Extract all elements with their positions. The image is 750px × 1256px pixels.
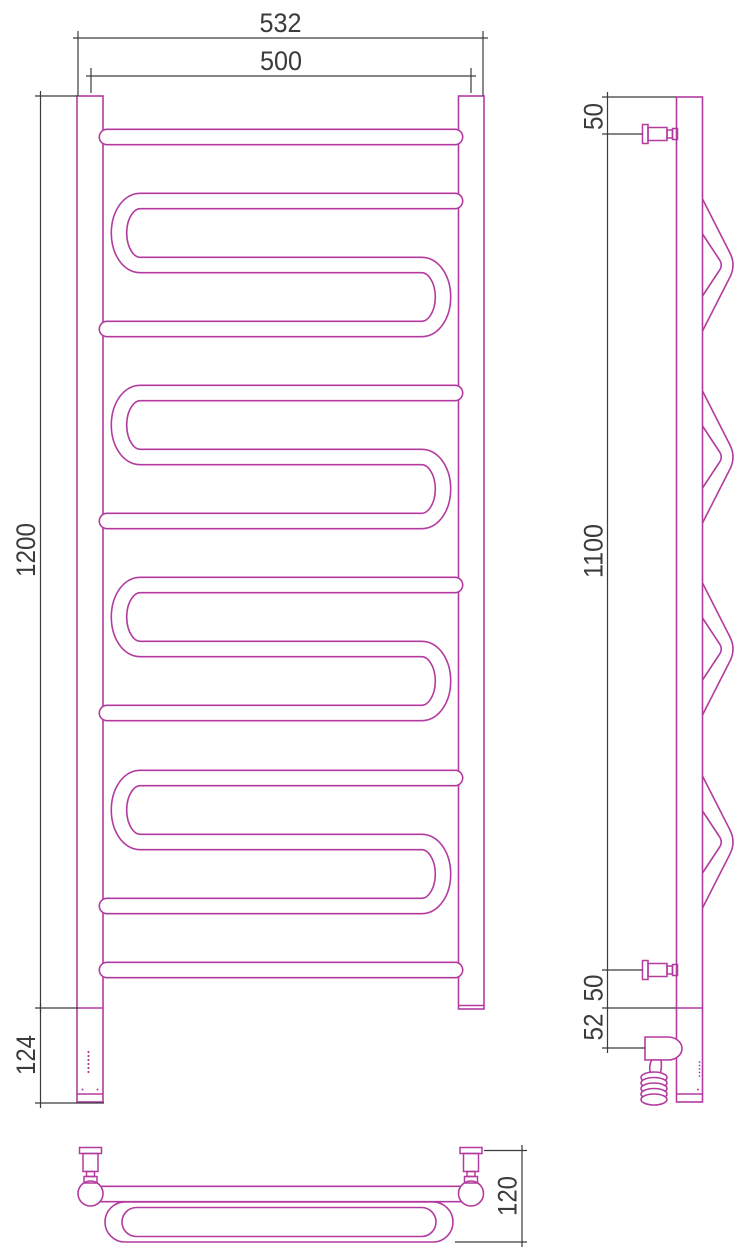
dimension-label-1100: 1100 <box>579 524 609 578</box>
side-coil-profile-1 <box>703 199 734 331</box>
dimension-label-500: 500 <box>260 46 302 76</box>
top-coil-inner-loop <box>122 1208 436 1237</box>
front-view <box>77 96 484 1102</box>
dimension-label-1200: 1200 <box>11 523 41 577</box>
front-serpentine-2 <box>107 393 455 521</box>
top-right-tube-section <box>459 1181 484 1206</box>
dimension-label-120: 120 <box>493 1176 523 1216</box>
dimension-side-chain: 50 1100 50 52 <box>579 92 677 1053</box>
cable-neck <box>650 1060 662 1073</box>
side-tube <box>677 97 703 1102</box>
towel-rail-technical-drawing: 532 500 1200 124 50 1100 50 52 120 <box>0 0 750 1256</box>
dimension-axis-width: 500 <box>86 46 476 93</box>
top-view <box>78 1148 484 1243</box>
dimension-label-top-50: 50 <box>579 103 609 130</box>
dimension-label-124: 124 <box>11 1035 41 1075</box>
side-bracket-top <box>643 125 678 144</box>
side-view <box>641 97 733 1105</box>
side-screw-dot <box>697 1089 699 1091</box>
top-bracket-left <box>80 1148 102 1184</box>
side-coil-profile-4 <box>703 776 734 908</box>
drawing-canvas: 532 500 1200 124 50 1100 50 52 120 <box>0 0 750 1256</box>
front-serpentine-1 <box>107 201 455 329</box>
heating-element-housing <box>645 1037 682 1060</box>
front-right-tube <box>459 96 485 1009</box>
front-serpentine-4 <box>107 778 455 906</box>
side-bracket-bottom <box>643 961 678 980</box>
top-bracket-right <box>460 1148 482 1184</box>
front-serpentine-3 <box>107 585 455 713</box>
front-left-tube <box>77 96 103 1102</box>
dimension-label-532: 532 <box>260 8 302 38</box>
front-screw-dot-left <box>82 1089 84 1091</box>
side-coil-profile-2 <box>703 391 734 523</box>
spiral-cable <box>641 1072 667 1105</box>
front-screw-dot-right <box>97 1089 99 1091</box>
dimension-label-bottom-50: 50 <box>579 975 609 1002</box>
dimension-label-52: 52 <box>579 1014 609 1041</box>
dimension-height: 1200 <box>11 91 78 1013</box>
side-coil-profile-3 <box>703 583 734 715</box>
top-left-tube-section <box>78 1181 103 1206</box>
